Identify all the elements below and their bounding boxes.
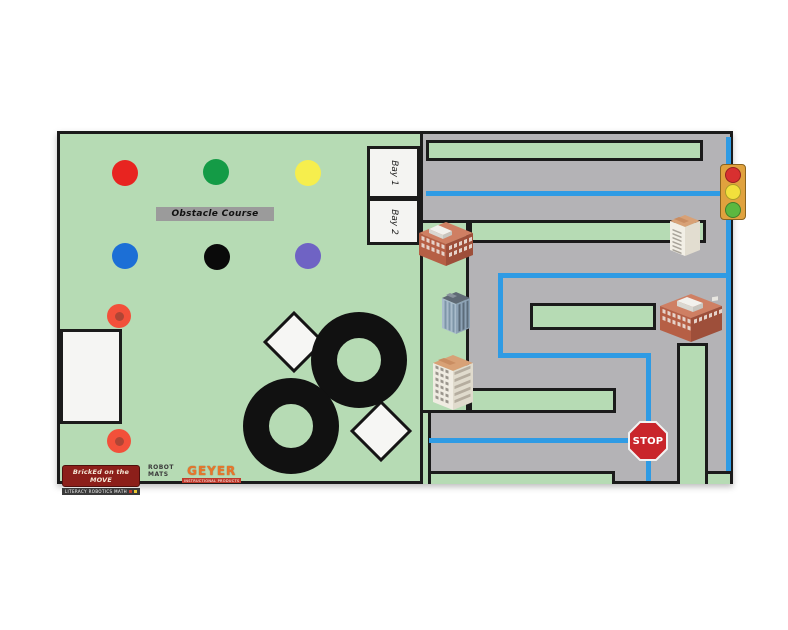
- white-building-southwest: [430, 352, 476, 414]
- bay-2-label: Bay 2: [389, 209, 399, 235]
- city-block-corner: [708, 471, 730, 484]
- tagline-red-square: [129, 490, 132, 493]
- bricked-logo-text: BrickEd on the MOVE: [62, 465, 140, 487]
- stop-sign-label: STOP: [633, 436, 664, 447]
- blue-path-top-horizontal: [426, 191, 730, 196]
- marker-dot-black: [204, 244, 230, 270]
- traffic-light-red: [725, 167, 741, 183]
- branding-row: BrickEd on the MOVE LITERACY ROBOTICS MA…: [62, 465, 241, 495]
- bay-2-box: Bay 2: [367, 198, 420, 245]
- tagline-yellow-square: [134, 490, 137, 493]
- bay-1-box: Bay 1: [367, 146, 420, 199]
- stop-sign: STOP: [628, 421, 668, 461]
- blue-path-lower-horizontal: [498, 353, 651, 358]
- bricked-tagline-text: LITERACY ROBOTICS MATH: [65, 489, 127, 494]
- obstacle-course-label: Obstacle Course: [156, 207, 274, 221]
- geyer-tagline: INSTRUCTIONAL PRODUCTS: [182, 478, 241, 483]
- marker-spot-core: [115, 312, 124, 321]
- city-map-panel: STOP: [423, 134, 730, 481]
- obstacle-course-panel: Obstacle Course Bay 1 Bay 2: [60, 134, 423, 481]
- bay-1-label: Bay 1: [389, 160, 399, 186]
- marker-dot-yellow: [295, 160, 321, 186]
- marker-dot-purple: [295, 243, 321, 269]
- geyer-logo-text: GEYER: [182, 465, 241, 477]
- blue-path-mid-vertical: [498, 273, 503, 358]
- white-building-northeast: [667, 212, 703, 258]
- marker-spot-top: [107, 304, 131, 328]
- blue-building-west: [437, 289, 475, 337]
- city-block-lower-left: [469, 388, 616, 413]
- page: Obstacle Course Bay 1 Bay 2: [0, 0, 788, 630]
- traffic-light: [720, 164, 746, 220]
- blue-path-stop-vertical: [646, 353, 651, 481]
- robot-mats-logo: ROBOT MATS: [148, 465, 174, 478]
- city-block-center: [530, 303, 656, 330]
- traffic-light-yellow: [725, 184, 741, 200]
- marker-spot-core: [115, 437, 124, 446]
- city-block-bottom: [426, 471, 615, 484]
- city-margin-left: [423, 413, 431, 484]
- traffic-light-green: [725, 202, 741, 218]
- city-block-right-strip: [677, 343, 708, 484]
- robot-mats-line2: MATS: [148, 472, 174, 479]
- stop-sign-face: STOP: [630, 423, 666, 459]
- city-block-top: [426, 140, 703, 161]
- blue-path-bottom-horizontal: [429, 438, 629, 443]
- blue-path-mid-horizontal: [500, 273, 731, 278]
- marker-spot-bottom: [107, 429, 131, 453]
- bricked-logo: BrickEd on the MOVE LITERACY ROBOTICS MA…: [62, 465, 140, 495]
- marker-dot-blue: [112, 243, 138, 269]
- marker-dot-red: [112, 160, 138, 186]
- start-zone-rectangle: [60, 329, 122, 424]
- brick-building-northwest: [416, 219, 476, 269]
- marker-dot-green: [203, 159, 229, 185]
- figure-eight-track: [238, 306, 413, 481]
- robotics-mat: Obstacle Course Bay 1 Bay 2: [57, 131, 733, 484]
- brick-building-east: [657, 292, 725, 344]
- bricked-tagline: LITERACY ROBOTICS MATH: [62, 488, 140, 495]
- geyer-logo: GEYER INSTRUCTIONAL PRODUCTS: [182, 465, 241, 483]
